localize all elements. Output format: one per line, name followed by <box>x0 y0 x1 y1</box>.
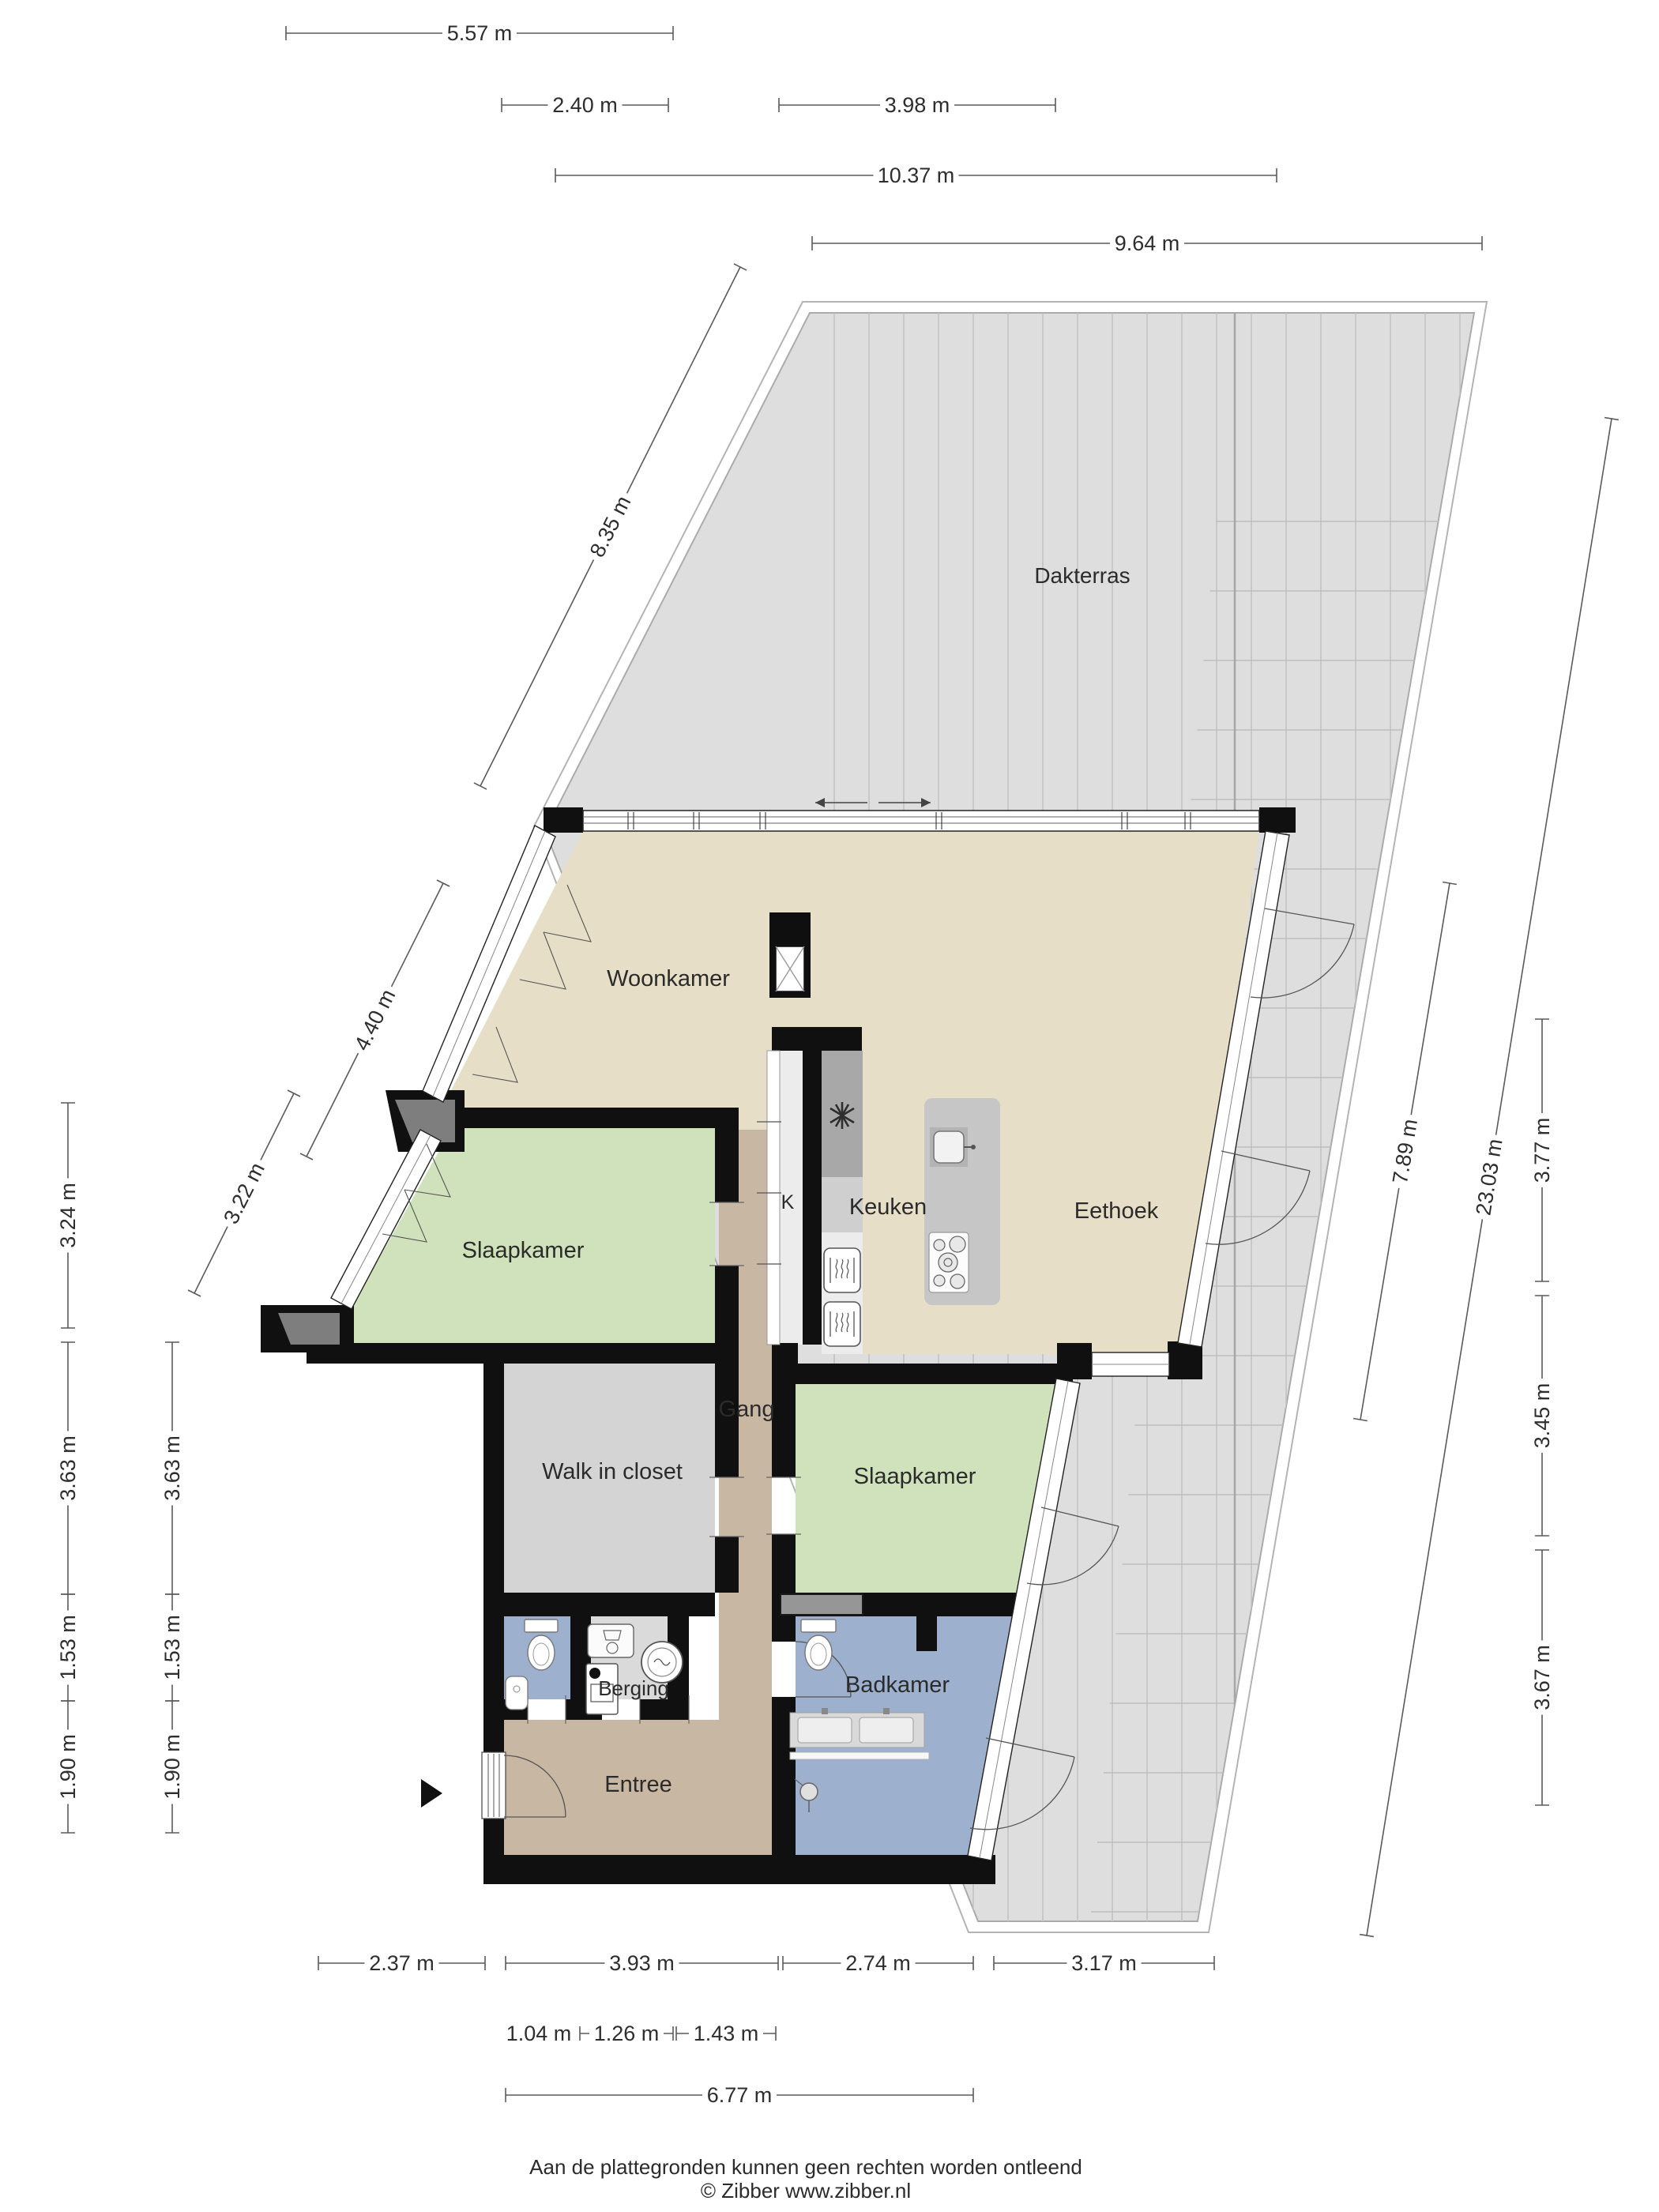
room-label: Walk in closet <box>542 1459 683 1484</box>
room-label: Badkamer <box>845 1672 950 1698</box>
dimension: 1.90 m <box>160 1701 185 1833</box>
dimension-label: 7.89 m <box>1388 1117 1422 1185</box>
room-label: Slaapkamer <box>854 1464 976 1489</box>
dimension: 2.37 m <box>318 1951 485 1976</box>
room-label: Gang <box>719 1397 775 1422</box>
dimension-label: 1.04 m <box>506 2022 572 2045</box>
dimension-label: 3.63 m <box>56 1435 80 1501</box>
dimension-label: 10.37 m <box>878 164 955 187</box>
kitchen-island <box>924 1098 1000 1305</box>
room-label: Woonkamer <box>607 966 730 991</box>
dimension-label: 6.77 m <box>707 2083 773 2107</box>
shaft <box>769 912 811 998</box>
dimension: 3.98 m <box>779 92 1055 118</box>
washbasin-icon <box>506 1676 528 1710</box>
dimension: 3.63 m <box>160 1342 185 1594</box>
dimension: 3.93 m <box>506 1951 778 1976</box>
room-label: Keuken <box>849 1194 927 1220</box>
dimension-label: 1.90 m <box>160 1734 184 1800</box>
dimension: 5.57 m <box>286 21 673 46</box>
dimension: 6.77 m <box>506 2082 973 2108</box>
dimension: 3.45 m <box>1529 1296 1555 1536</box>
room-label: Dakterras <box>1034 563 1130 588</box>
dimension-label: 3.77 m <box>1530 1118 1554 1183</box>
copyright-text: © Zibber www.zibber.nl <box>0 2179 1612 2203</box>
dimension-label: 1.90 m <box>56 1734 80 1800</box>
dimension: 1.04 m <box>502 2021 576 2046</box>
dimension-label: 2.74 m <box>845 1951 911 1975</box>
dimension: 1.90 m <box>55 1701 81 1833</box>
dimension-label: 5.57 m <box>447 21 513 45</box>
dimension-label: 1.26 m <box>594 2022 660 2045</box>
gas-hob-icon <box>929 1232 969 1292</box>
dimension: 9.64 m <box>812 231 1482 256</box>
disclaimer-text: Aan de plattegronden kunnen geen rechten… <box>0 2155 1612 2179</box>
dimension-label: 3.17 m <box>1071 1951 1137 1975</box>
dimension-label: 4.40 m <box>350 985 401 1054</box>
room-label: Entree <box>604 1772 671 1797</box>
dimension-label: 3.98 m <box>885 93 950 117</box>
entrance-arrow <box>421 1779 442 1808</box>
dimension-label: 3.67 m <box>1530 1645 1554 1710</box>
oven-icon <box>824 1302 860 1346</box>
dimension-label: 3.22 m <box>219 1159 269 1228</box>
dimension-label: 1.43 m <box>694 2022 759 2045</box>
bedroom-closet-niche <box>781 1594 863 1615</box>
room-label: Slaapkamer <box>462 1238 585 1263</box>
dimension-label: 9.64 m <box>1115 231 1180 255</box>
dimension-label: 8.35 m <box>585 492 636 561</box>
floor-plan-svg: 5.57 m2.40 m3.98 m10.37 m9.64 m8.35 m4.4… <box>0 0 1659 2212</box>
dimension: 10.37 m <box>555 163 1277 188</box>
floorplan-page: 5.57 m2.40 m3.98 m10.37 m9.64 m8.35 m4.4… <box>0 0 1659 2212</box>
dimension: 2.74 m <box>783 1951 973 1976</box>
room-label: Berging <box>598 1676 669 1700</box>
dimension: 1.53 m <box>55 1594 81 1701</box>
dimension: 2.40 m <box>502 92 668 118</box>
oven-icon <box>824 1248 860 1292</box>
dimension: 3.24 m <box>55 1103 81 1328</box>
room-label: K <box>781 1191 795 1213</box>
dimension-label: 1.53 m <box>160 1615 184 1680</box>
laundry-sink-icon <box>588 1624 634 1657</box>
dimension: 3.63 m <box>55 1342 81 1594</box>
room-label: Eethoek <box>1074 1198 1159 1224</box>
dimension-label: 1.53 m <box>56 1615 80 1680</box>
dimension-label: 3.45 m <box>1530 1383 1554 1449</box>
dimension: 3.22 m <box>188 1090 300 1296</box>
dimension: 3.77 m <box>1529 1019 1555 1281</box>
dimension: 1.26 m <box>580 2021 673 2046</box>
toilet-icon <box>525 1619 558 1670</box>
dimension-label: 3.24 m <box>56 1183 80 1248</box>
dimension-label: 3.93 m <box>609 1951 675 1975</box>
dimension-label: 2.40 m <box>552 93 618 117</box>
window-band-top <box>583 811 1259 831</box>
dimension: 1.43 m <box>676 2021 776 2046</box>
dimension: 1.53 m <box>160 1594 185 1701</box>
dimension: 3.67 m <box>1529 1550 1555 1805</box>
dimension-label: 2.37 m <box>369 1951 434 1975</box>
dimension-label: 3.63 m <box>160 1435 184 1501</box>
dimension: 3.17 m <box>994 1951 1214 1976</box>
